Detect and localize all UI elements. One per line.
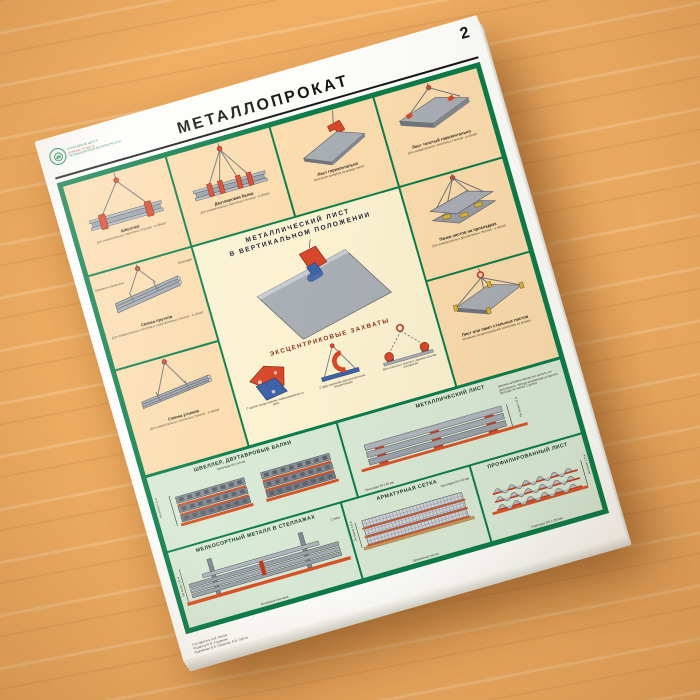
photo-vignette [0, 0, 700, 700]
wooden-table-background: ОТРАСЛЕВОЙ ЦЕНТР ОХРАНЫ ТРУДА И ПРОМЫШЛЕ… [0, 0, 700, 700]
